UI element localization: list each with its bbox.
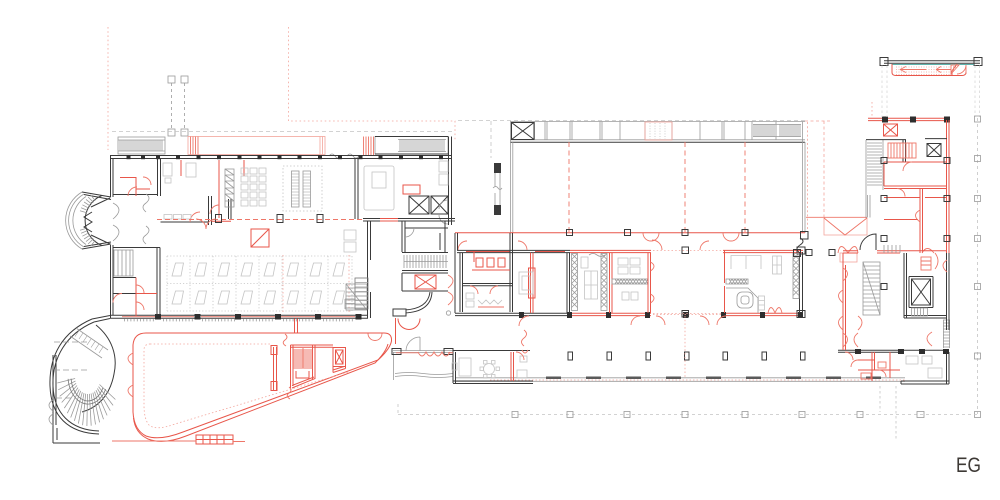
svg-text:EG: EG <box>956 453 981 477</box>
